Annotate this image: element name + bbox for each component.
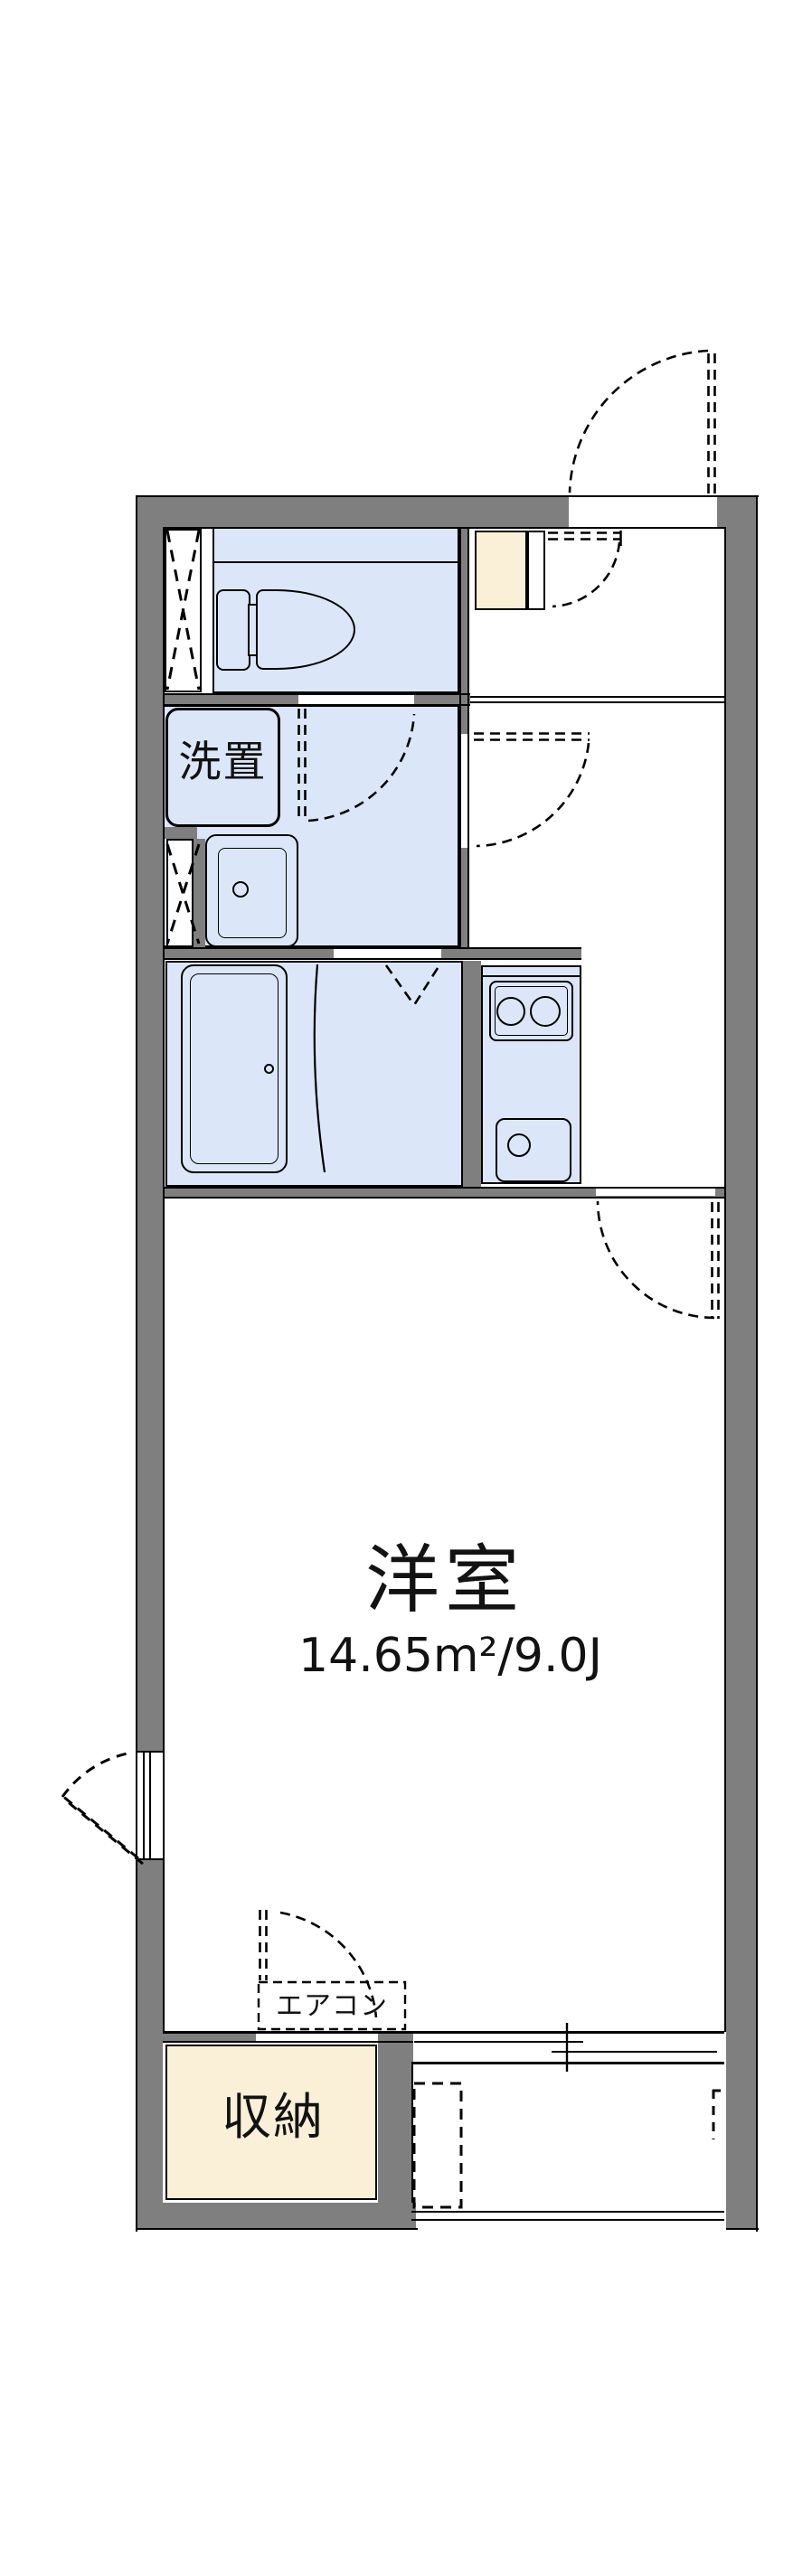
edge-top-outer	[136, 495, 759, 497]
entry-door-opening	[571, 497, 715, 525]
burner-icon	[530, 996, 561, 1027]
balcony-left-edge	[411, 2064, 413, 2203]
toilet-shelf-line	[212, 561, 459, 563]
wall-bottom	[137, 2203, 416, 2230]
pipe-space-icon	[166, 839, 194, 947]
burner-icon	[496, 997, 525, 1026]
window-glass-2	[149, 1753, 151, 1858]
washer-space-label: 洗置	[165, 741, 280, 784]
window-cap-bottom	[137, 1858, 163, 1860]
entry-door-arc-icon	[570, 351, 708, 493]
shoe-cabinet-side	[527, 531, 545, 610]
window-sash-right	[552, 2051, 717, 2053]
window-sash-left	[414, 2041, 583, 2043]
wall-left-lower	[137, 1860, 163, 2230]
kitchen-sink-icon	[496, 1118, 571, 1182]
shoe-door-arc-icon	[552, 542, 619, 606]
outswing-window-leaf-icon	[61, 1795, 143, 1864]
entrance-step-2	[470, 701, 726, 703]
room-door-leaf-icon	[713, 1202, 719, 1319]
toilet-tank-icon	[216, 589, 250, 671]
main-room-label: 洋室	[264, 1544, 626, 1618]
aircon-label: エアコン	[259, 1993, 405, 2020]
edge-wallD-left	[459, 527, 461, 947]
pipe-space-icon	[165, 529, 202, 692]
room-door-opening	[596, 1189, 715, 1196]
storage-door-leaf-icon	[260, 1910, 267, 1980]
wall-washroom-sliver	[194, 839, 205, 947]
edge-bottom-outer	[136, 2228, 418, 2230]
edge-left-inner	[163, 527, 165, 2031]
edge-wallA-top	[163, 693, 470, 695]
bathtub-drain-icon	[264, 1064, 274, 1074]
shoe-cabinet	[475, 531, 527, 610]
balcony-bottom-2	[411, 2219, 724, 2221]
wall-left-upper	[137, 497, 163, 1753]
washroom-door-arc-icon	[477, 743, 589, 846]
edge-rightwall-cap	[726, 2228, 759, 2230]
kitchen-tap-icon	[507, 1133, 531, 1157]
edge-wallA-bottom	[163, 704, 470, 706]
wall-washroom-stub	[163, 827, 197, 839]
bath-door-opening	[334, 949, 441, 958]
outswing-window-arc-icon	[62, 1753, 132, 1797]
storage-label: 収納	[181, 2092, 365, 2142]
edge-right-outer	[756, 495, 758, 2232]
main-room-area-label: 14.65m²/9.0J	[134, 1632, 767, 1679]
edge-left-outer	[136, 495, 137, 2232]
toilet-door-opening	[298, 695, 414, 704]
counter-back-line	[481, 975, 581, 977]
storage-door-opening	[258, 2033, 376, 2040]
wall-right	[726, 497, 757, 2230]
wall-top-left	[137, 497, 569, 527]
room-door-arc-icon	[598, 1201, 714, 1318]
edge-wallC-top	[163, 1187, 726, 1189]
floor-plan: 洗置 洋室 14.65m²/9.0J エアコン 収納	[0, 0, 812, 2576]
wall-storage-right	[378, 2031, 413, 2205]
edge-wallC-bottom	[163, 1197, 726, 1199]
washbasin-tap-icon	[232, 881, 249, 898]
window-glass-1	[143, 1753, 145, 1858]
balcony-equipment-icon	[414, 2083, 461, 2207]
entrance-step-1	[470, 696, 726, 698]
edge-right-inner	[724, 527, 726, 2032]
edge-wallD-right	[467, 527, 469, 947]
wall-bath-kitchen	[463, 961, 481, 1187]
edge-wallB-bottom	[163, 958, 581, 960]
edge-storage-bottom	[163, 2041, 413, 2043]
balcony-bottom-1	[411, 2211, 724, 2213]
washbasin-bowl-icon	[218, 848, 287, 938]
balcony-top-edge	[411, 2062, 724, 2064]
edge-storage-top	[163, 2031, 724, 2034]
shoe-door-leaf-icon	[548, 533, 620, 540]
edge-wallB-top	[163, 947, 581, 949]
edge-top-inner	[163, 527, 726, 529]
entry-door-leaf-icon	[709, 349, 715, 494]
washroom-door-leaf-icon	[474, 734, 590, 740]
